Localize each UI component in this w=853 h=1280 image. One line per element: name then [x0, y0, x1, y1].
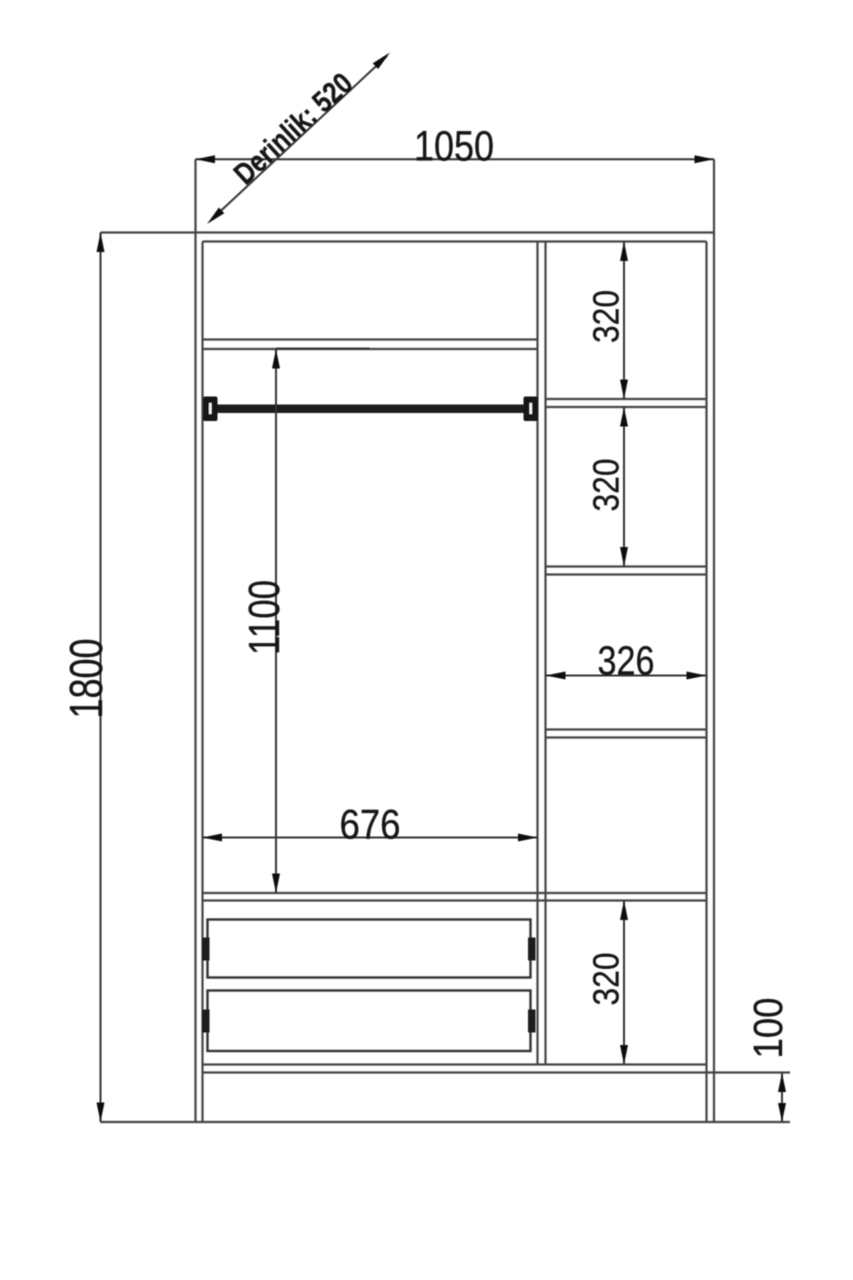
svg-text:1050: 1050: [414, 123, 494, 171]
svg-text:100: 100: [745, 998, 791, 1059]
svg-text:326: 326: [598, 638, 655, 684]
svg-text:676: 676: [340, 801, 401, 848]
svg-text:320: 320: [586, 953, 627, 1006]
svg-text:1100: 1100: [240, 580, 289, 655]
svg-text:1800: 1800: [60, 639, 112, 719]
svg-text:320: 320: [586, 290, 627, 343]
svg-text:320: 320: [586, 459, 627, 512]
